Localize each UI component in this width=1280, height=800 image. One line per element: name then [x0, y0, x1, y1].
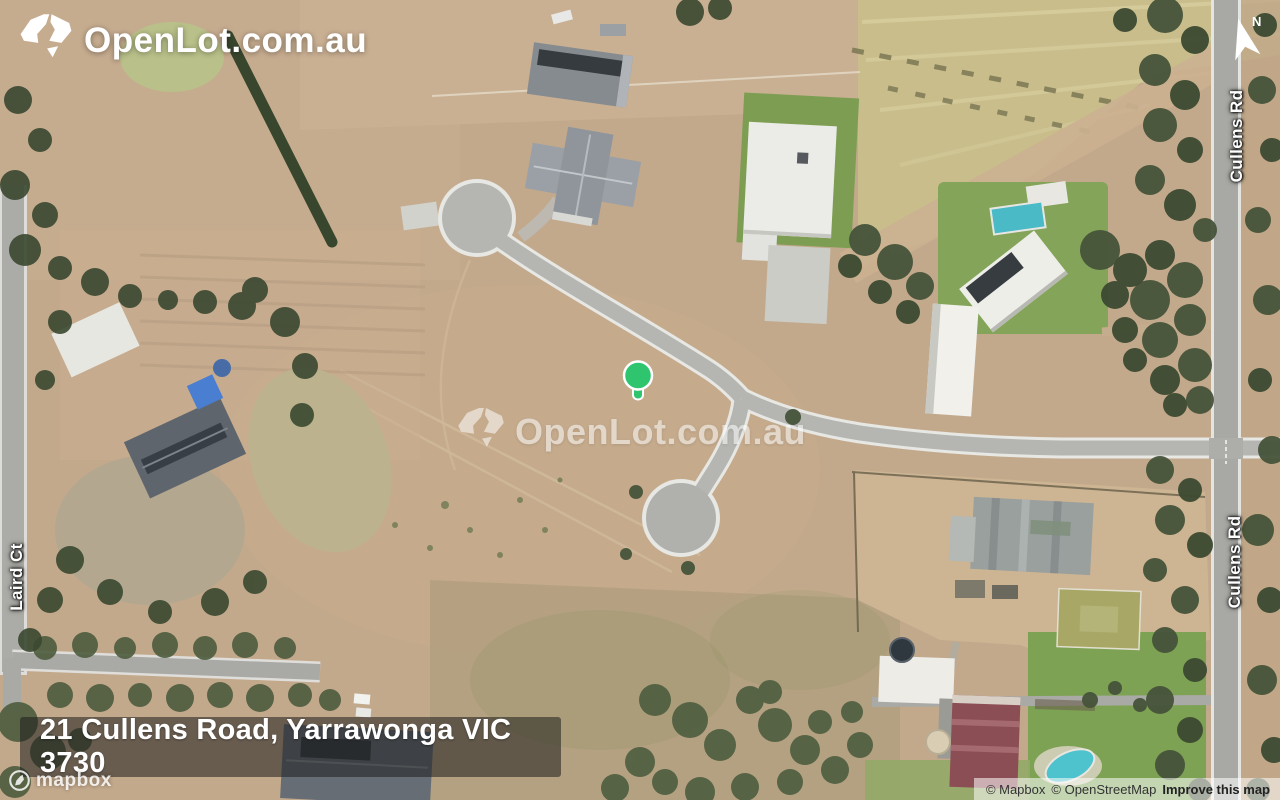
road-label-cullens-rd: Cullens Rd — [1227, 90, 1247, 183]
openlot-logo-text: OpenLot.com.au — [84, 21, 367, 61]
openlot-logo[interactable]: OpenLot.com.au — [18, 12, 367, 70]
map-screenshot: OpenLot.com.au Cullens Rd Cullens Rd Lai… — [0, 0, 1280, 800]
openlot-logo-icon — [18, 12, 74, 70]
mapbox-logo[interactable]: mapbox — [8, 769, 112, 792]
attribution-bar: © Mapbox © OpenStreetMap Improve this ma… — [974, 778, 1280, 800]
road-label-cullens-rd-south: Cullens Rd — [1225, 516, 1245, 609]
mapbox-logo-icon — [8, 769, 31, 792]
north-arrow-icon: N — [1222, 10, 1266, 66]
road-label-laird-ct: Laird Ct — [7, 543, 27, 610]
openstreetmap-copyright-link[interactable]: © OpenStreetMap — [1051, 782, 1156, 797]
property-marker-pin[interactable] — [619, 359, 657, 405]
property-address: 21 Cullens Road, Yarrawonga VIC 3730 — [40, 714, 561, 780]
improve-this-map-link[interactable]: Improve this map — [1162, 782, 1270, 797]
mapbox-wordmark: mapbox — [36, 770, 112, 792]
mapbox-copyright-link[interactable]: © Mapbox — [986, 782, 1045, 797]
address-bar: 21 Cullens Road, Yarrawonga VIC 3730 — [20, 717, 561, 777]
north-arrow-label: N — [1252, 14, 1261, 29]
